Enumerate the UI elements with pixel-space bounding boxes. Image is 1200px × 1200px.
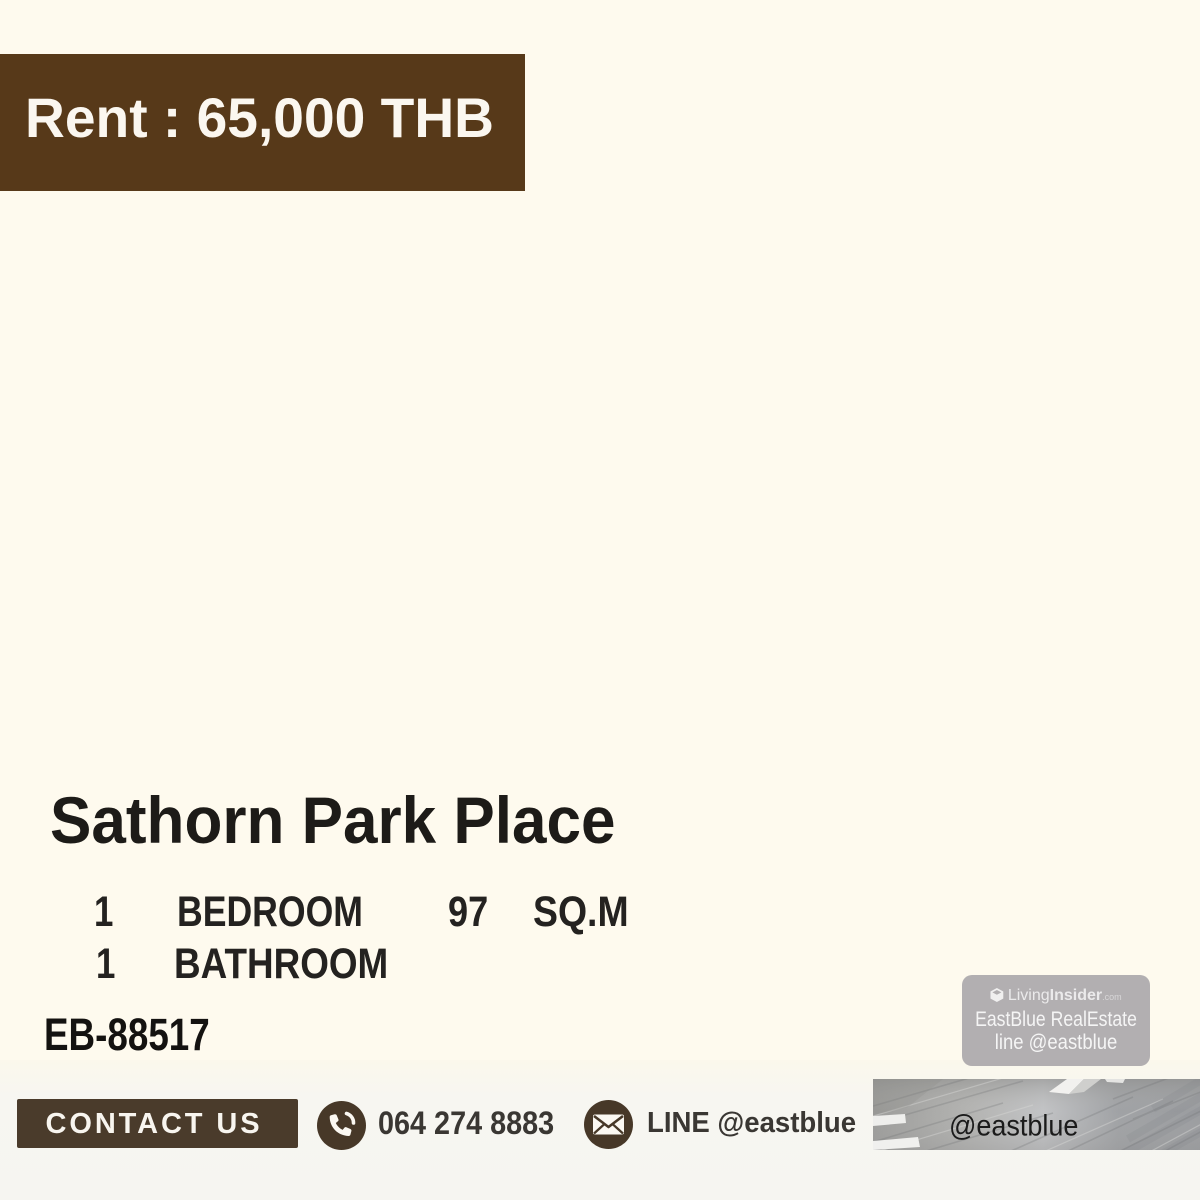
svg-text:@eastblue: @eastblue xyxy=(949,1109,1078,1143)
